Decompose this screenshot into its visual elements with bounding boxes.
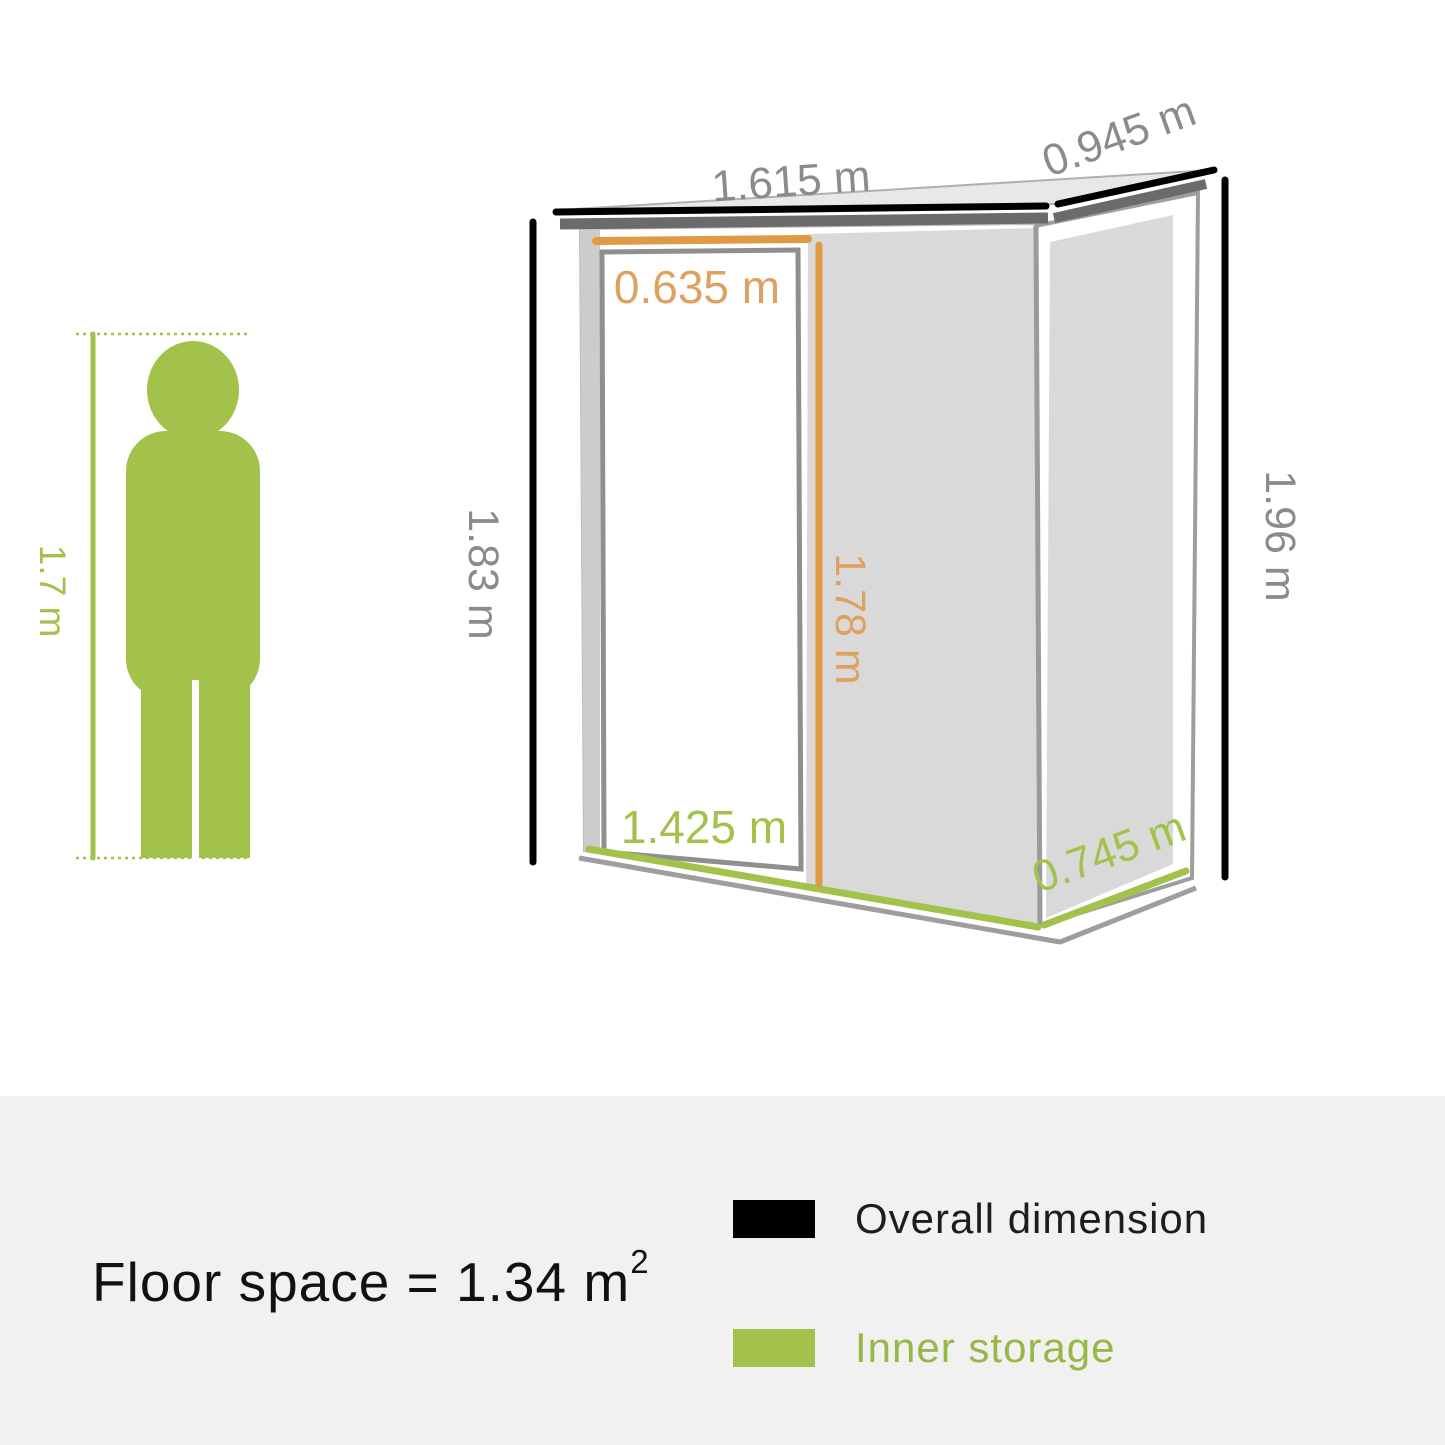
floor-space-superscript: 2 [630, 1243, 649, 1280]
legend-row-overall: Overall dimension [733, 1196, 1293, 1242]
person-figure-group: 1.7 m [32, 334, 260, 860]
person-leg-left [141, 640, 192, 858]
door-width-line [596, 239, 808, 241]
front-height-label: 1.83 m [459, 508, 507, 639]
back-height-label: 1.96 m [1256, 470, 1304, 601]
legend-row-inner: Inner storage [733, 1325, 1293, 1371]
inner-width-label: 1.425 m [621, 801, 787, 853]
person-height-label: 1.7 m [32, 545, 73, 638]
product-dimension-diagram: 1.7 m [0, 0, 1445, 1445]
legend: Overall dimension Inner storage [733, 1196, 1293, 1371]
person-head [147, 341, 239, 439]
overall-dimension-swatch [733, 1200, 815, 1238]
inner-storage-swatch [733, 1329, 815, 1367]
door [602, 250, 801, 869]
floor-space-label: Floor space = 1.34 m2 [92, 1243, 650, 1314]
inner-storage-label: Inner storage [855, 1324, 1116, 1372]
floor-space-text: Floor space = 1.34 m [92, 1251, 630, 1313]
roof-fascia-front [560, 218, 1048, 224]
overall-dimension-label: Overall dimension [855, 1195, 1208, 1243]
door-height-label: 1.78 m [826, 553, 874, 684]
door-width-label: 0.635 m [614, 261, 780, 313]
person-leg-right [199, 640, 250, 858]
shed-group: 1.615 m 0.945 m 0.635 m 1.83 m 1.78 m 1.… [459, 86, 1304, 942]
